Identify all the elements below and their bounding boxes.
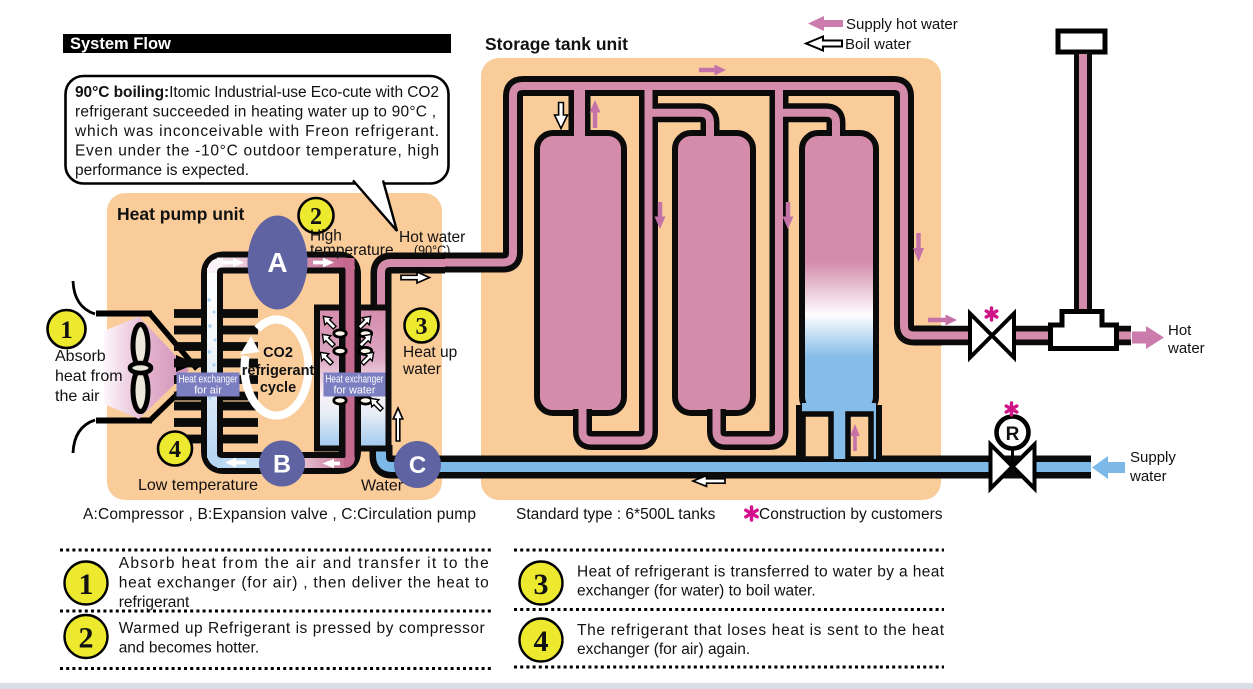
svg-text:4: 4: [169, 437, 181, 463]
svg-text:which was inconceivable with F: which was inconceivable with Freon refri…: [74, 123, 439, 140]
svg-text:Low temperature: Low temperature: [138, 477, 258, 494]
svg-text:Supply hot water: Supply hot water: [846, 16, 958, 33]
svg-text:refrigerant succeeded in heati: refrigerant succeeded in heating water u…: [75, 104, 436, 121]
svg-text:Warmed up Refrigerant is press: Warmed up Refrigerant is pressed by comp…: [119, 620, 485, 637]
svg-text:3: 3: [416, 314, 428, 340]
svg-text:1: 1: [79, 568, 94, 601]
svg-text:2: 2: [79, 622, 94, 655]
svg-text:4: 4: [534, 625, 549, 658]
svg-text:Even under the -10°C outdoor t: Even under the -10°C outdoor temperature…: [75, 143, 439, 160]
svg-text:temperature: temperature: [310, 242, 394, 259]
svg-text:Standard type : 6*500L tanks: Standard type : 6*500L tanks: [516, 506, 716, 523]
svg-text:Boil water: Boil water: [845, 36, 911, 53]
svg-text:2: 2: [310, 204, 322, 230]
svg-text:90°C boiling:Itomic Industrial: 90°C boiling:Itomic Industrial-use Eco-c…: [75, 84, 439, 101]
svg-text:Storage tank unit: Storage tank unit: [485, 34, 628, 54]
svg-text:heat from: heat from: [55, 368, 123, 385]
svg-text:Absorb: Absorb: [55, 348, 106, 365]
svg-text:for water: for water: [333, 385, 375, 397]
svg-text:heat exchanger (for air) , the: heat exchanger (for air) , then deliver …: [119, 575, 489, 592]
svg-text:Heat pump unit: Heat pump unit: [117, 204, 245, 224]
svg-text:C: C: [409, 452, 426, 479]
svg-text:performance is expected.: performance is expected.: [75, 162, 249, 179]
svg-text:Heat of refrigerant is transfe: Heat of refrigerant is transferred to wa…: [577, 564, 945, 581]
svg-text:water: water: [402, 361, 441, 378]
svg-text:Hot: Hot: [1168, 322, 1192, 339]
svg-text:A:Compressor , B:Expansion val: A:Compressor , B:Expansion valve , C:Cir…: [83, 506, 476, 523]
svg-text:refrigerant: refrigerant: [119, 594, 190, 611]
svg-text:Water: Water: [361, 478, 404, 495]
svg-text:(90°C): (90°C): [414, 244, 450, 258]
svg-text:for air: for air: [194, 385, 222, 397]
svg-text:water: water: [1167, 340, 1205, 357]
svg-text:CO2: CO2: [263, 345, 293, 361]
svg-text:water: water: [1129, 468, 1167, 485]
svg-text:R: R: [1006, 424, 1020, 445]
svg-text:Supply: Supply: [1130, 449, 1176, 466]
svg-text:Heat up: Heat up: [403, 344, 457, 361]
svg-text:3: 3: [534, 568, 549, 601]
svg-text:The refrigerant that loses hea: The refrigerant that loses heat is sent …: [577, 622, 945, 639]
svg-text:B: B: [273, 451, 291, 479]
svg-text:exchanger (for air) again.: exchanger (for air) again.: [577, 641, 750, 658]
svg-text:A: A: [267, 247, 287, 278]
svg-text:the air: the air: [55, 388, 100, 405]
svg-text:System Flow: System Flow: [70, 35, 171, 53]
svg-text:refrigerant: refrigerant: [242, 363, 315, 379]
svg-text:exchanger (for water) to boil: exchanger (for water) to boil water.: [577, 583, 816, 600]
svg-text:1: 1: [60, 317, 73, 344]
svg-text:Absorb heat from the air and t: Absorb heat from the air and transfer it…: [119, 555, 489, 572]
svg-text:Construction by customers: Construction by customers: [759, 506, 943, 523]
svg-text:and becomes hotter.: and becomes hotter.: [119, 640, 259, 657]
svg-text:cycle: cycle: [260, 380, 296, 396]
